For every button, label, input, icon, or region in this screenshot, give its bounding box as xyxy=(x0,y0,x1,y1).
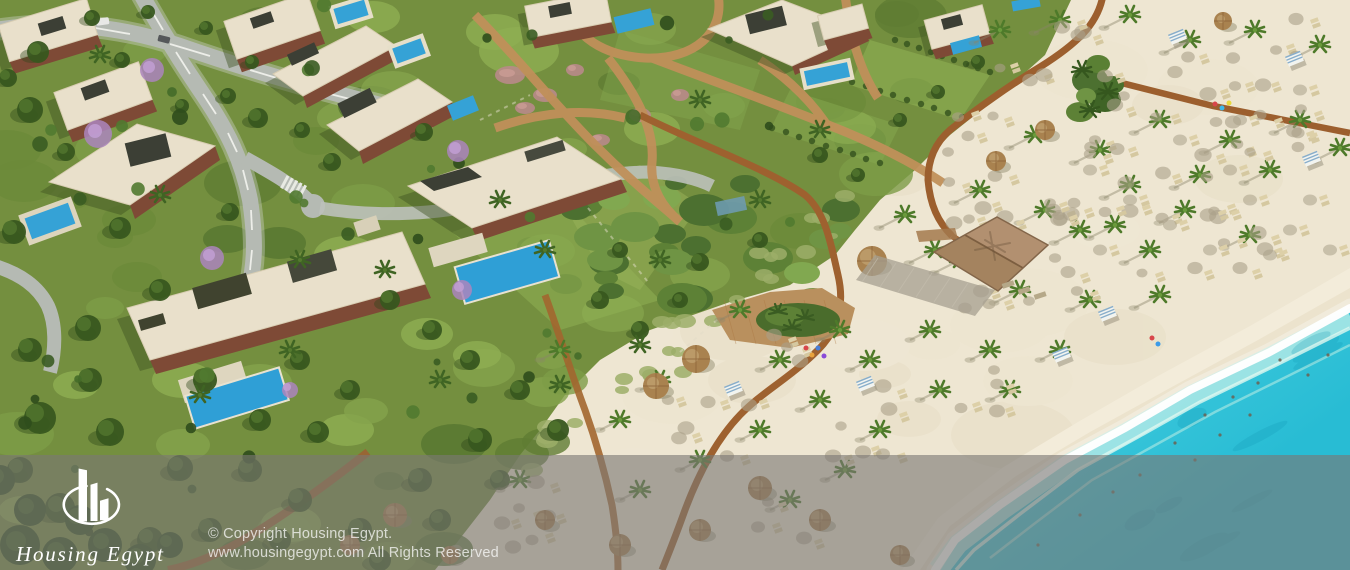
svg-text:www.housingegypt.com All Right: www.housingegypt.com All Rights Reserved xyxy=(207,545,499,561)
svg-text:Housing Egypt: Housing Egypt xyxy=(15,542,165,566)
svg-text:© Copyright Housing Egypt.: © Copyright Housing Egypt. xyxy=(208,526,392,542)
